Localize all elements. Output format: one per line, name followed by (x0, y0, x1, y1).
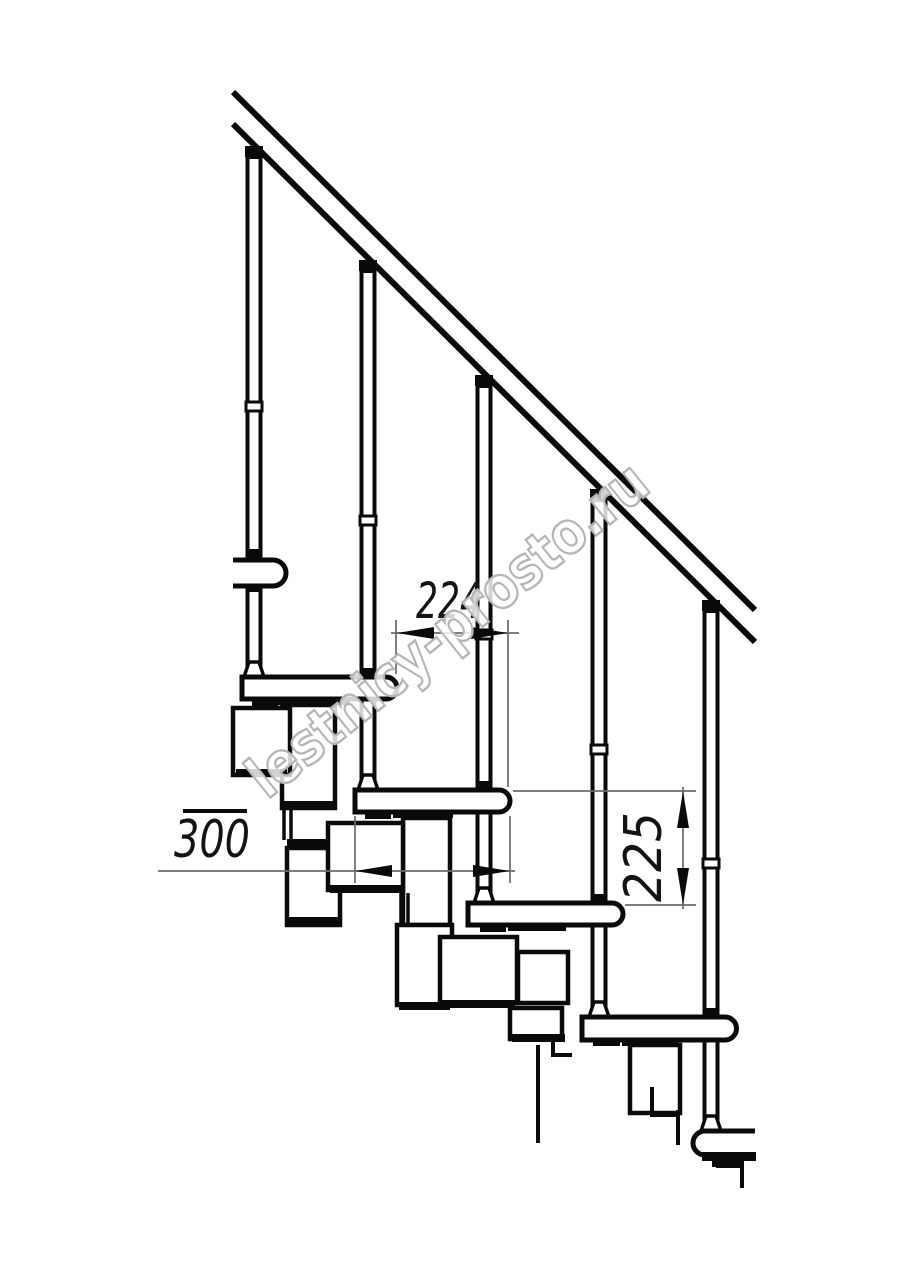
baluster-sleeve (591, 745, 607, 754)
tread-mount-nub (593, 1040, 620, 1046)
baluster-4 (589, 489, 609, 1017)
tread-mount-nub (252, 699, 278, 706)
staircase-technical-drawing: 224 300 225 lestnicy-prosto.ru (0, 0, 914, 1280)
module-bar (512, 1034, 565, 1042)
baluster-5 (701, 600, 721, 1131)
tread-4 (582, 1017, 737, 1040)
module-bar (330, 885, 401, 893)
module-box (630, 1045, 680, 1113)
handrail-top-edge (233, 92, 755, 610)
dimension-label-tread-depth: 300 (174, 810, 250, 870)
module-bar (284, 801, 333, 808)
module-bar (289, 917, 338, 925)
tread-mount-bar (508, 923, 566, 931)
baluster-collar (475, 781, 493, 790)
tread-mount-bar (393, 810, 453, 818)
tread-mount-bar (622, 1040, 678, 1046)
baluster-1 (244, 146, 264, 677)
tread-3 (468, 903, 623, 925)
dimension-label-step-rise: 225 (614, 812, 674, 902)
tread-mount-bar (702, 1152, 756, 1161)
baluster-collar (702, 1008, 720, 1017)
module-box (440, 937, 517, 1003)
drawing-canvas: 224 300 225 lestnicy-prosto.ru (0, 0, 914, 1280)
baluster-sleeve (246, 402, 262, 411)
tread-2 (355, 790, 510, 812)
tread-mount-nub (365, 812, 391, 819)
module-bar (442, 1000, 515, 1008)
baluster-sleeve (703, 859, 719, 868)
module-box (328, 823, 403, 890)
module-box (518, 952, 568, 1003)
tread-5-partial (693, 1131, 755, 1155)
arrow-up-icon (677, 791, 689, 828)
baluster-sleeve (360, 516, 376, 525)
arrow-down-icon (677, 868, 689, 905)
tread-mount-nub (480, 925, 506, 932)
tread-top-partial (233, 560, 286, 586)
baluster-collar (590, 894, 608, 903)
